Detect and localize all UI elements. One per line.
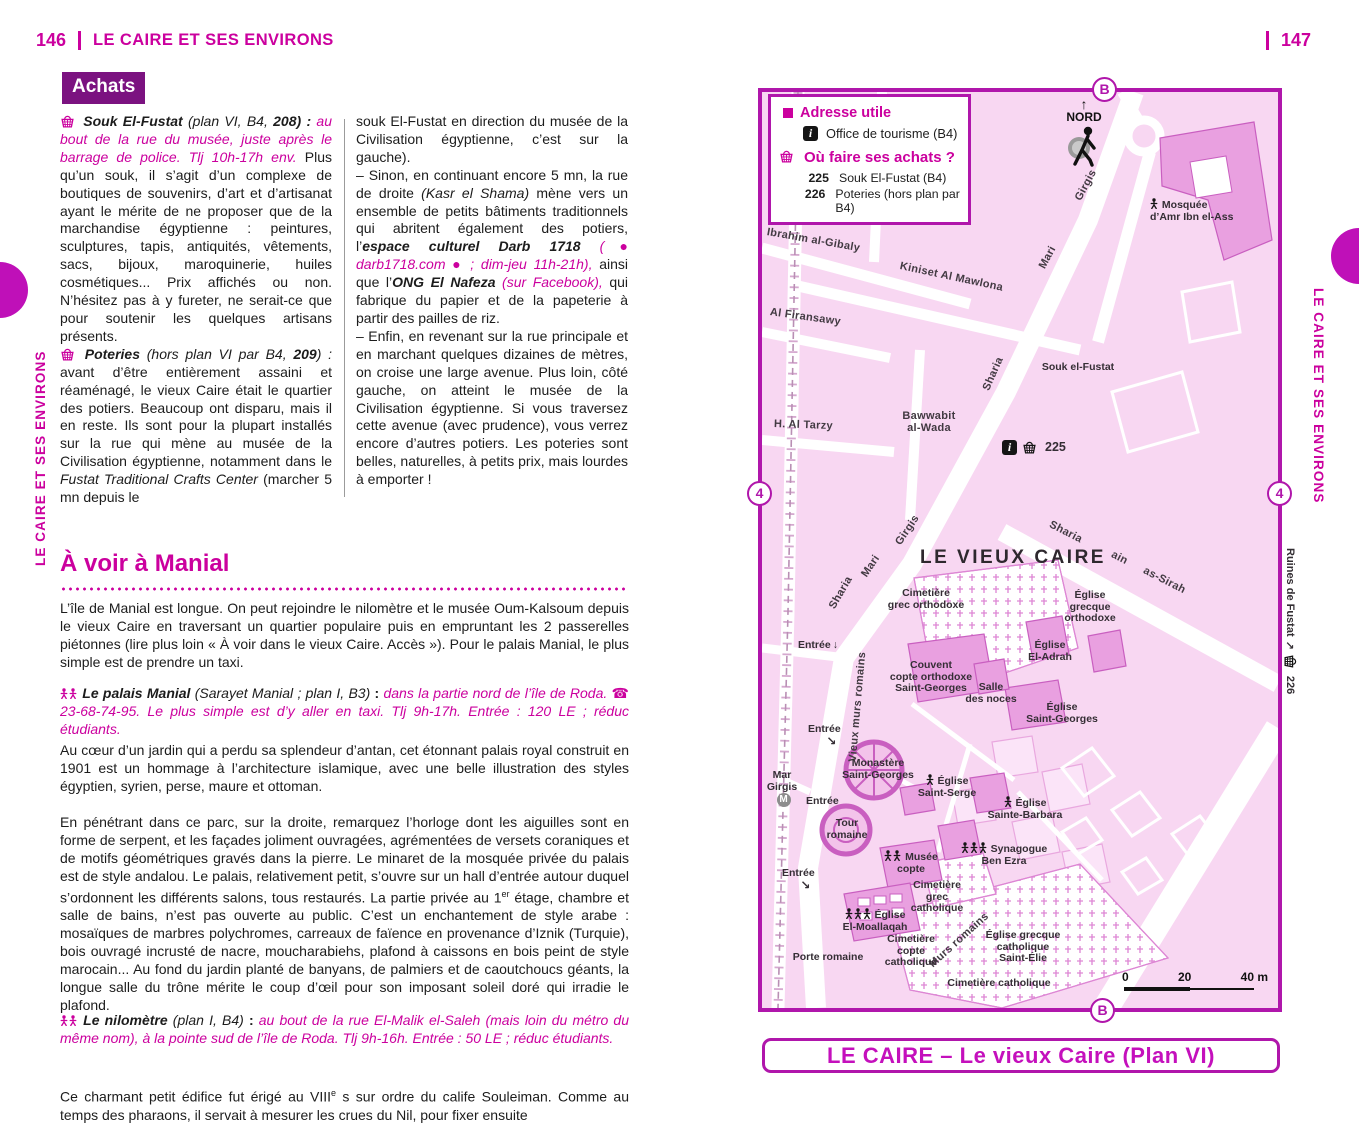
north-indicator: ↑ NORD [1054,98,1114,171]
legend-address-row: Adresse utile [779,105,962,121]
north-label: NORD [1054,110,1114,124]
nilometre-body: Ce charmant petit édifice fut érigé au V… [60,1085,629,1124]
person-sight-icon [893,850,901,861]
book-spread: 146 LE CAIRE ET SES ENVIRONS 147 LE CAIR… [0,0,1359,1134]
poi-label: Souk El-Fustat (B4) [839,171,946,185]
map-label: MarGirgisM [762,770,802,807]
map-caption: LE CAIRE – Le vieux Caire (Plan VI) [762,1038,1280,1073]
section-dotted-rule [60,586,628,592]
person-sight-icon [60,688,68,699]
city-map-vieux-caire: Ibrahim al-GibalyKiniset Al MawlonaAl Fi… [758,88,1282,1012]
paragraph-col2-2: – Sinon, en continuant encore 5 mn, la r… [356,167,628,328]
map-label: H. Al Tarzy [774,418,833,432]
person-sight-icon [845,908,853,919]
info-icon: i [1002,440,1017,455]
map-label: as-Sirah [1141,565,1187,597]
map-label: Entrée↘ [808,724,841,746]
map-label: LE VIEUX CAIRE [920,548,1106,569]
arrow-icon: ↘ [822,736,841,746]
map-label: Mari [859,553,882,580]
scale-segment [1124,987,1190,991]
achats-column-2: souk El-Fustat en direction du musée de … [356,113,628,507]
column-divider [344,119,345,497]
map-label: Mari [1037,244,1059,271]
person-sight-icon [1150,198,1158,209]
map-label: Sharia [980,355,1005,392]
grid-marker-4-right: 4 [1267,481,1292,506]
person-sight-icon [884,850,892,861]
legend-address-item: i Office de tourisme (B4) [803,126,962,141]
achats-columns: Souk El-Fustat (plan VI, B4, 208) : au b… [60,113,628,507]
poi-label: Poteries (hors plan par B4) [835,187,962,215]
arrow-ne-icon: ↗ [1284,641,1297,650]
basket-icon [1283,654,1297,672]
manial-intro: L’île de Manial est longue. On peut rejo… [60,600,629,672]
grid-marker-4-left: 4 [747,481,772,506]
left-margin-tab [0,262,28,318]
ruines-number: 226 [1284,676,1296,694]
page-number-left: 146 [36,30,66,51]
legend-shopping-item: 225 Souk El-Fustat (B4) [803,171,962,185]
legend-address-item-label: Office de tourisme (B4) [826,126,957,141]
arrow-icon: ↓ [833,639,838,651]
legend-address-title: Adresse utile [800,105,891,121]
person-sight-icon [1004,796,1012,807]
map-label: ÉgliseSainte-Barbara [974,796,1076,821]
map-label: Muséecopte [878,850,944,875]
map-label: Girgis [1073,168,1099,203]
map-label: ÉgliseEl-Adrah [1014,640,1086,663]
basket-icon [779,148,797,166]
square-bullet-icon [783,108,793,118]
map-label: Églisegrecqueorthodoxe [1054,590,1126,625]
scale-0: 0 [1122,970,1129,984]
page-number-right: 147 [1281,30,1311,51]
map-label: Tourromaine [816,818,878,841]
person-sight-icon [961,842,969,853]
scale-20: 20 [1178,970,1191,984]
poi-number: 225 [803,171,829,185]
basket-icon [779,150,794,163]
arrow-icon: ↘ [796,880,815,890]
map-label: Al Firansawy [769,306,841,328]
header-left: 146 LE CAIRE ET SES ENVIRONS [36,30,334,51]
map-label: Cimetièregrec orthodoxe [870,588,982,611]
left-margin-vertical-title: LE CAIRE ET SES ENVIRONS [33,351,48,566]
grid-marker-b-bottom: B [1090,998,1115,1023]
paragraph-col2-3: – Enfin, en revenant sur la rue principa… [356,328,628,489]
paragraph-poteries: Poteries (hors plan VI par B4, 209) : av… [60,346,332,507]
map-label: Vieux murs romains [847,642,870,763]
map-label: Cimetièrecoptecatholique [872,934,950,969]
header-title: LE CAIRE ET SES ENVIRONS [93,31,334,50]
map-label: Cimetière catholique [918,978,1080,990]
section-badge-achats: Achats [62,72,145,104]
sight-nilometre: Le nilomètre (plan I, B4) : au bout de l… [60,1012,629,1048]
legend-shopping-title: Où faire ses achats ? [804,149,955,166]
person-sight-icon [69,688,77,699]
map-legend: Adresse utile i Office de tourisme (B4) … [768,94,971,225]
map-label: Entrée↘ [782,868,815,890]
ruines-de-fustat-note: Ruines de Fustat ↗ 226 [1283,548,1297,694]
person-sight-icon [926,774,934,785]
map-label: Souk el-Fustat [1022,362,1134,374]
sight-palais-manial: Le palais Manial (Sarayet Manial ; plan … [60,685,629,739]
basket-icon [1284,654,1297,669]
map-label: ain [1109,549,1129,567]
poi-number: 226 [803,187,825,215]
legend-shopping-row: Où faire ses achats ? [779,148,962,166]
basket-icon [60,348,75,361]
section-title-manial: À voir à Manial [60,550,229,578]
map-label: Entrée↓ [798,640,838,652]
person-sight-icon [979,842,987,853]
map-label: ÉgliseSaint-Georges [1014,702,1110,725]
map-labels-layer: Ibrahim al-GibalyKiniset Al MawlonaAl Fi… [762,92,1278,1008]
map-label: Église grecquecatholiqueSaint-Élie [970,930,1076,965]
map-label: Sharia [1047,519,1084,546]
legend-shopping-item: 226 Poteries (hors plan par B4) [803,187,962,215]
map-label: Porte romaine [780,952,876,964]
paragraph-col2-1: souk El-Fustat en direction du musée de … [356,113,628,167]
basket-icon [60,115,75,128]
header-divider [78,31,81,50]
person-sight-icon [60,1015,68,1026]
header-divider [1266,31,1269,50]
map-label: Sharia [827,574,855,611]
scale-40: 40 m [1241,970,1268,984]
person-sight-icon [854,908,862,919]
paragraph-souk-el-fustat: Souk El-Fustat (plan VI, B4, 208) : au b… [60,113,332,346]
map-label: Bawwabital-Wada [894,410,964,434]
map-label: ÉgliseEl-Moallaqah [824,908,926,933]
map-label: Kiniset Al Mawlona [899,260,1004,294]
map-label: i 225 [1002,440,1066,455]
map-label: Mosquéed’Amr Ibn el-Ass [1150,198,1270,223]
palais-manial-body-2: En pénétrant dans ce parc, sur la droite… [60,814,629,1015]
person-sight-icon [970,842,978,853]
map-label: Ibrahim al-Gibaly [766,226,861,254]
grid-marker-b-top: B [1092,77,1117,102]
ruines-label: Ruines de Fustat [1284,548,1296,637]
map-label: Entrée [806,796,839,808]
achats-column-1: Souk El-Fustat (plan VI, B4, 208) : au b… [60,113,332,507]
palais-manial-body-1: Au cœur d’un jardin qui a perdu sa splen… [60,742,629,796]
walking-traveler-logo-icon [1065,124,1103,168]
right-margin-vertical-title: LE CAIRE ET SES ENVIRONS [1311,288,1326,503]
map-label: SynagogueBen Ezra [958,842,1050,867]
metro-icon: M [777,793,791,807]
info-icon: i [803,126,818,141]
person-sight-icon [69,1015,77,1026]
scale-segment [1190,988,1254,990]
map-label: Girgis [893,513,922,548]
map-scale-bar: 0 20 40 m [1122,970,1268,986]
right-margin-tab [1331,228,1359,284]
person-sight-icon [863,908,871,919]
header-right: 147 [1266,30,1311,51]
basket-icon [1022,441,1037,454]
